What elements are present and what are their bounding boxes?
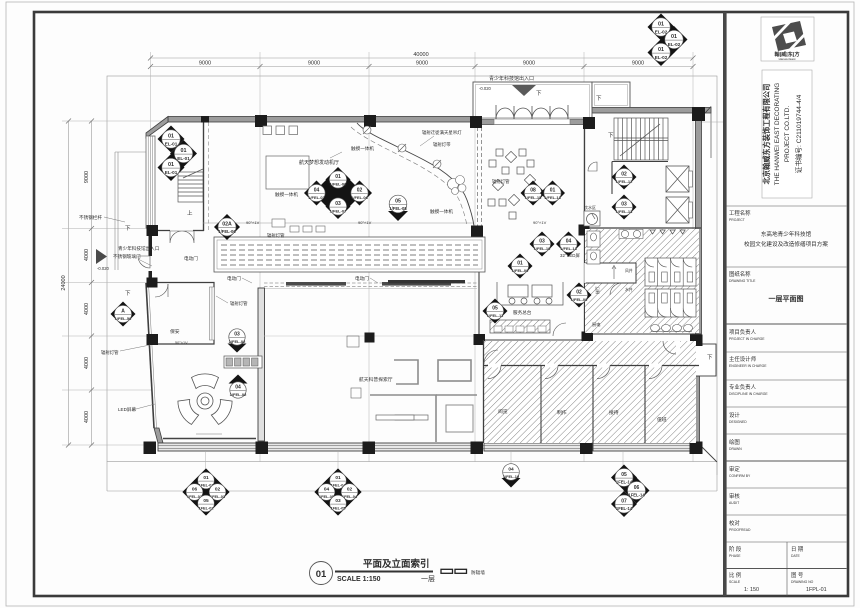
svg-text:DISCIPLINE IN CHARGE: DISCIPLINE IN CHARGE: [729, 392, 768, 396]
svg-text:下: 下: [536, 90, 542, 97]
svg-text:02: 02: [347, 486, 353, 492]
svg-text:03: 03: [539, 238, 545, 244]
svg-text:A: A: [121, 308, 125, 314]
svg-text:DRAWING NO: DRAWING NO: [791, 580, 814, 584]
svg-text:触摸一体机: 触摸一体机: [351, 145, 374, 152]
svg-text:设计: 设计: [729, 411, 740, 419]
svg-text:02: 02: [357, 187, 363, 193]
svg-text:ENGINEER IN CHARGE: ENGINEER IN CHARGE: [729, 364, 767, 368]
svg-text:下: 下: [608, 132, 614, 139]
svg-text:1: 150: 1: 150: [744, 587, 759, 593]
svg-text:图 号: 图 号: [791, 571, 804, 579]
svg-text:9000: 9000: [308, 61, 320, 67]
svg-text:下: 下: [125, 290, 131, 297]
svg-text:上: 上: [187, 209, 193, 217]
svg-text:24000: 24000: [61, 275, 67, 290]
svg-text:9000: 9000: [632, 61, 644, 67]
svg-text:PROJECT: PROJECT: [729, 218, 745, 222]
svg-text:梯厅: 梯厅: [595, 286, 600, 294]
svg-text:1/FEL-09: 1/FEL-09: [571, 297, 588, 302]
svg-text:1/FEL-02: 1/FEL-02: [229, 339, 246, 344]
svg-text:风井: 风井: [625, 268, 633, 273]
svg-text:辐射灯管: 辐射灯管: [492, 178, 510, 185]
svg-text:90°˄1V: 90°˄1V: [358, 220, 372, 225]
svg-text:制作: 制作: [557, 409, 567, 416]
svg-text:CONFIRM BY: CONFIRM BY: [729, 474, 751, 478]
svg-text:一层: 一层: [421, 575, 435, 583]
svg-text:项目负责人: 项目负责人: [729, 328, 757, 336]
svg-text:1/FEL-07: 1/FEL-07: [308, 195, 325, 200]
svg-text:1FPL-01: 1FPL-01: [806, 587, 827, 593]
svg-text:4000: 4000: [84, 357, 90, 369]
svg-text:1/FEL-10: 1/FEL-10: [503, 474, 519, 479]
svg-text:4000: 4000: [84, 303, 90, 315]
svg-text:一层平面图: 一层平面图: [769, 294, 804, 303]
svg-text:06: 06: [634, 485, 640, 491]
svg-text:1/FEL-13: 1/FEL-13: [616, 209, 633, 214]
svg-text:03: 03: [234, 331, 240, 337]
svg-text:01: 01: [671, 34, 677, 40]
svg-text:1/FEL-08: 1/FEL-08: [389, 206, 407, 211]
svg-text:02: 02: [621, 171, 627, 177]
svg-text:05: 05: [395, 198, 401, 204]
svg-text:EL-02: EL-02: [655, 29, 668, 34]
svg-text:PROOFREAD: PROOFREAD: [729, 528, 751, 532]
svg-text:1/FEL-12: 1/FEL-12: [616, 179, 633, 184]
svg-text:1/FEL-06: 1/FEL-06: [218, 229, 236, 234]
svg-text:审核: 审核: [729, 492, 740, 500]
svg-text:03: 03: [335, 498, 341, 504]
svg-text:SCALE: SCALE: [729, 580, 741, 584]
svg-text:01: 01: [168, 162, 174, 168]
svg-text:06: 06: [192, 486, 198, 492]
svg-text:1FEL-02: 1FEL-02: [198, 505, 214, 510]
svg-text:EL-01: EL-01: [165, 141, 178, 146]
svg-text:接待: 接待: [609, 409, 619, 416]
svg-text:03: 03: [621, 201, 627, 207]
svg-text:01: 01: [550, 187, 556, 193]
svg-text:Hanwei East: Hanwei East: [779, 57, 796, 61]
svg-text:04: 04: [235, 384, 241, 390]
svg-text:04: 04: [324, 486, 330, 492]
svg-text:校对: 校对: [729, 519, 740, 527]
svg-text:绘图: 绘图: [729, 438, 740, 446]
svg-text:辐射灯管: 辐射灯管: [230, 300, 248, 307]
svg-text:DATE: DATE: [791, 554, 801, 558]
svg-text:05: 05: [621, 472, 627, 478]
svg-text:下: 下: [125, 225, 131, 232]
svg-text:1/FEL-13: 1/FEL-13: [544, 195, 561, 200]
svg-text:1/FEL-10: 1/FEL-10: [534, 246, 551, 251]
svg-text:-0.020: -0.020: [97, 266, 110, 271]
svg-text:1/FEL-06: 1/FEL-06: [351, 195, 368, 200]
svg-text:图纸名称: 图纸名称: [729, 270, 751, 278]
svg-text:航天科普探索厅: 航天科普探索厅: [359, 376, 393, 383]
svg-text:90°˄1V: 90°˄1V: [246, 220, 260, 225]
svg-text:1/FEL-50: 1/FEL-50: [115, 316, 132, 321]
svg-text:航天梦想发动机厅: 航天梦想发动机厅: [299, 159, 339, 166]
svg-text:01: 01: [168, 133, 174, 139]
svg-text:辐射灯管: 辐射灯管: [101, 349, 119, 356]
svg-text:证书编号: C211019744-4/4: 证书编号: C211019744-4/4: [794, 94, 803, 173]
svg-text:服务总台: 服务总台: [513, 309, 532, 316]
svg-text:01: 01: [316, 569, 327, 580]
svg-text:4000: 4000: [84, 249, 90, 261]
svg-text:电动门: 电动门: [184, 255, 198, 262]
svg-text:1FEL-05: 1FEL-05: [330, 505, 346, 510]
svg-text:01: 01: [658, 47, 664, 53]
svg-text:DRAWN: DRAWN: [729, 447, 742, 451]
svg-text:01: 01: [335, 174, 341, 180]
svg-text:平面及立面索引: 平面及立面索引: [363, 558, 430, 570]
svg-text:1FEL-14: 1FEL-14: [628, 493, 645, 498]
svg-text:1/FEL-13: 1/FEL-13: [560, 246, 577, 251]
svg-text:01: 01: [203, 475, 209, 481]
svg-text:01: 01: [181, 148, 187, 154]
svg-text:电动门: 电动门: [355, 275, 369, 282]
svg-text:触摸一体机: 触摸一体机: [430, 208, 453, 215]
svg-text:校园文化建设及改造修缮项目方案: 校园文化建设及改造修缮项目方案: [744, 240, 828, 248]
svg-text:值班: 值班: [657, 416, 667, 423]
svg-text:1/FEL-09: 1/FEL-09: [512, 268, 529, 273]
svg-text:阅览: 阅览: [498, 408, 508, 415]
svg-text:08: 08: [530, 187, 536, 193]
svg-text:北京翰威东方装饰工程有限公司: 北京翰威东方装饰工程有限公司: [762, 84, 771, 185]
svg-text:比 例: 比 例: [729, 571, 741, 579]
svg-text:水井: 水井: [625, 287, 633, 292]
svg-text:1/FEL-11: 1/FEL-11: [487, 313, 504, 318]
svg-text:DRAWING TITLE: DRAWING TITLE: [729, 279, 756, 283]
svg-text:40000: 40000: [413, 52, 428, 58]
svg-text:01: 01: [658, 21, 664, 27]
svg-text:EL-01: EL-01: [177, 156, 190, 161]
svg-text:日 期: 日 期: [791, 546, 803, 553]
svg-text:9000: 9000: [199, 61, 211, 67]
svg-text:1/FEL-02: 1/FEL-02: [230, 392, 247, 397]
svg-text:EL-02: EL-02: [655, 55, 668, 60]
svg-text:防辐墙: 防辐墙: [471, 569, 485, 576]
svg-text:-0.020: -0.020: [479, 86, 492, 91]
svg-text:DESIGNED: DESIGNED: [729, 420, 747, 424]
svg-text:1/FEL-07: 1/FEL-07: [330, 209, 347, 214]
svg-text:04: 04: [566, 238, 572, 244]
svg-text:9000: 9000: [84, 171, 90, 183]
svg-text:04: 04: [508, 466, 514, 472]
svg-text:PHASE: PHASE: [729, 554, 741, 558]
svg-text:主任设计师: 主任设计师: [729, 355, 757, 363]
svg-text:辐射迁徙满天星吊灯: 辐射迁徙满天星吊灯: [422, 129, 462, 136]
svg-text:05: 05: [492, 305, 498, 311]
svg-text:05: 05: [203, 498, 209, 504]
svg-text:01: 01: [517, 260, 523, 266]
svg-text:PROJECT CO.LTD.: PROJECT CO.LTD.: [784, 106, 791, 162]
svg-text:厨电: 厨电: [592, 321, 601, 327]
svg-text:THE HANWEI EAST DECORATING: THE HANWEI EAST DECORATING: [774, 83, 781, 185]
svg-text:电动门: 电动门: [227, 275, 241, 282]
svg-text:青少年科技馆出入口: 青少年科技馆出入口: [118, 245, 160, 252]
svg-text:01: 01: [335, 475, 341, 481]
svg-text:下: 下: [596, 95, 602, 102]
svg-text:东高地青少年科技馆: 东高地青少年科技馆: [761, 230, 812, 238]
svg-text:EL-01: EL-01: [165, 170, 178, 175]
svg-text:工程名称: 工程名称: [729, 209, 751, 217]
svg-text:07: 07: [621, 498, 627, 504]
svg-text:辐射灯带: 辐射灯带: [433, 141, 451, 148]
svg-text:LED屏幕: LED屏幕: [118, 406, 137, 413]
svg-text:1/FEL-15: 1/FEL-15: [525, 195, 542, 200]
svg-text:AUDIT: AUDIT: [729, 501, 739, 505]
svg-text:02A: 02A: [222, 221, 232, 227]
svg-text:50°˄1V: 50°˄1V: [175, 341, 188, 345]
svg-text:审定: 审定: [729, 465, 740, 473]
svg-text:04: 04: [314, 187, 320, 193]
svg-text:专业负责人: 专业负责人: [729, 383, 757, 391]
svg-text:9000: 9000: [523, 61, 535, 67]
svg-text:4000: 4000: [84, 411, 90, 423]
svg-text:不锈钢栏杆: 不锈钢栏杆: [79, 214, 102, 221]
svg-text:不锈钢玻璃门: 不锈钢玻璃门: [113, 253, 141, 260]
svg-text:PROJECT IN CHARGE: PROJECT IN CHARGE: [729, 337, 765, 341]
svg-text:03: 03: [335, 201, 341, 207]
svg-text:阶 段: 阶 段: [729, 545, 742, 553]
svg-text:饮水区: 饮水区: [584, 204, 596, 210]
svg-text:下: 下: [707, 354, 713, 361]
svg-text:EL-02: EL-02: [668, 42, 681, 47]
svg-text:1/FEL-06: 1/FEL-06: [330, 182, 347, 187]
svg-text:青少年科技馆出入口: 青少年科技馆出入口: [489, 75, 534, 82]
svg-text:90°˄1V: 90°˄1V: [533, 220, 547, 225]
svg-text:02: 02: [576, 289, 582, 295]
svg-text:辐射灯管: 辐射灯管: [267, 232, 285, 239]
svg-text:触摸一体机: 触摸一体机: [275, 191, 298, 198]
svg-text:02: 02: [215, 486, 221, 492]
svg-text:保安: 保安: [170, 328, 180, 335]
svg-text:SCALE 1:150: SCALE 1:150: [337, 576, 381, 583]
svg-text:1FEL-14: 1FEL-14: [616, 506, 633, 511]
svg-text:9000: 9000: [416, 61, 428, 67]
